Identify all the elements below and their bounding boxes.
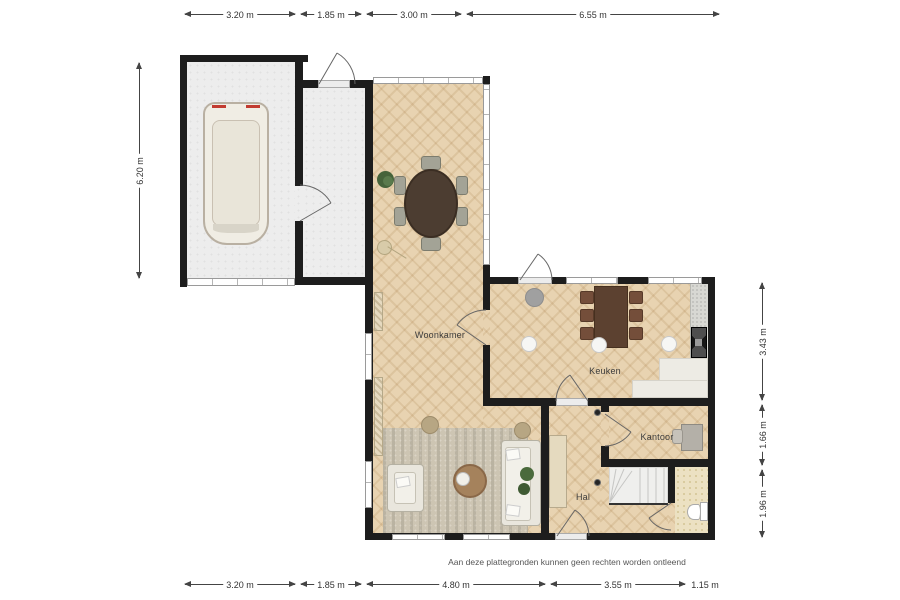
ceiling-light [591, 337, 607, 353]
wall [303, 80, 318, 88]
wall [588, 398, 715, 406]
dimension-label: 1.85 m [314, 580, 348, 590]
dimension-label: 1.66 m [758, 418, 768, 452]
kitchen-counter-lower [659, 358, 708, 382]
door-gap-floor [483, 310, 490, 345]
door-gap-floor [295, 186, 303, 221]
dimension-label: 6.20 m [135, 154, 145, 188]
door-threshold [318, 80, 350, 88]
dining-chair [421, 156, 441, 170]
dimension-line: 6.55 m [467, 14, 719, 15]
dimension-line: 1.66 m [762, 405, 763, 465]
desk-chair [672, 429, 683, 444]
storage-corridor-floor [303, 88, 365, 277]
dining-table [404, 169, 458, 238]
window [463, 534, 510, 540]
hall-cabinet [549, 435, 567, 508]
pouf [421, 416, 439, 434]
wall [180, 55, 308, 62]
wall [483, 265, 490, 310]
dimension-line: 4.80 m [367, 584, 545, 585]
ceiling-light [661, 336, 677, 352]
room-label-hall: Hal [576, 492, 590, 502]
kitchen-chair [629, 291, 643, 304]
wall [483, 76, 490, 84]
stairs-edge [609, 503, 668, 505]
kitchen-chair [580, 327, 594, 340]
dimension-line: 6.20 m [139, 63, 140, 278]
dimension-line: 1.15 m [691, 584, 719, 585]
dining-chair [456, 176, 468, 195]
wall [618, 277, 648, 284]
door-threshold [556, 398, 588, 406]
window [365, 461, 372, 508]
dimension-label: 3.20 m [223, 580, 257, 590]
radiator [374, 377, 383, 456]
van-roof [212, 120, 260, 226]
dimension-label: 6.55 m [576, 10, 610, 20]
window [392, 534, 445, 540]
wall [601, 459, 715, 467]
wall [483, 277, 518, 284]
room-label-living: Woonkamer [415, 330, 465, 340]
ceiling-light [521, 336, 537, 352]
toilet-floor [675, 467, 708, 533]
desk [681, 424, 703, 451]
window [483, 84, 490, 265]
coffee-table-tray [456, 472, 470, 486]
staircase [609, 467, 668, 504]
floor-plan-canvas: Woonkamer Keuken Kantoor Hal 3.20 m 1.85… [0, 0, 900, 600]
kitchen-chair [580, 309, 594, 322]
dimension-line: 1.85 m [301, 584, 361, 585]
radiator [374, 292, 383, 331]
dimension-label: 3.00 m [397, 10, 431, 20]
window [648, 277, 702, 284]
dimension-line: 3.55 m [551, 584, 685, 585]
plant [383, 176, 393, 186]
dining-chair [456, 207, 468, 226]
front-door-threshold [555, 533, 587, 540]
wall [295, 277, 373, 285]
plant-on-sofa [520, 467, 534, 481]
door-gap-floor [668, 503, 675, 533]
dimension-line: 1.96 m [762, 470, 763, 537]
wall [601, 446, 609, 459]
room-label-office: Kantoor [641, 432, 674, 442]
dimension-label: 3.43 m [758, 325, 768, 359]
wall [601, 406, 609, 412]
cooktop-knob [695, 339, 702, 346]
dimension-label: 1.15 m [688, 580, 722, 590]
ceiling-spot [594, 479, 601, 486]
dimension-label: 4.80 m [439, 580, 473, 590]
ceiling-spot [594, 409, 601, 416]
dimension-line: 3.43 m [762, 283, 763, 400]
dimension-line: 3.20 m [185, 14, 295, 15]
dimension-line: 3.00 m [367, 14, 461, 15]
wall [708, 277, 715, 540]
kitchen-chair [629, 327, 643, 340]
wall [295, 221, 303, 285]
pouf [514, 422, 531, 439]
dining-chair [394, 176, 406, 195]
van-windshield [213, 224, 259, 233]
garage-door [187, 278, 295, 286]
toilet-tank [700, 502, 708, 521]
van-taillight [246, 105, 260, 108]
pillow [505, 448, 520, 461]
window [365, 333, 372, 380]
wall [483, 345, 490, 406]
room-label-kitchen: Keuken [589, 366, 621, 376]
wall [552, 277, 566, 284]
kitchen-chair [580, 291, 594, 304]
dimension-label: 1.96 m [758, 487, 768, 521]
wall [668, 467, 675, 503]
dimension-line: 1.85 m [301, 14, 361, 15]
pillow [505, 504, 520, 517]
dimension-label: 3.20 m [223, 10, 257, 20]
kitchen-chair [629, 309, 643, 322]
toilet-bowl [687, 504, 701, 520]
extractor [525, 288, 544, 307]
dining-chair [421, 237, 441, 251]
dimension-label: 1.85 m [314, 10, 348, 20]
wall [295, 62, 303, 186]
wall [541, 398, 549, 540]
sofa [501, 440, 541, 526]
window [566, 277, 618, 284]
disclaimer-text: Aan deze plattegronden kunnen geen recht… [448, 557, 686, 567]
door-gap-floor [601, 412, 609, 446]
kitchen-counter-lower [632, 380, 708, 398]
plant-on-sofa [518, 483, 530, 495]
van-top-view [203, 102, 269, 245]
wall [180, 55, 187, 287]
door-threshold [518, 277, 552, 284]
dimension-label: 3.55 m [601, 580, 635, 590]
window [373, 77, 483, 84]
armchair [387, 464, 424, 512]
van-taillight [212, 105, 226, 108]
dimension-line: 3.20 m [185, 584, 295, 585]
